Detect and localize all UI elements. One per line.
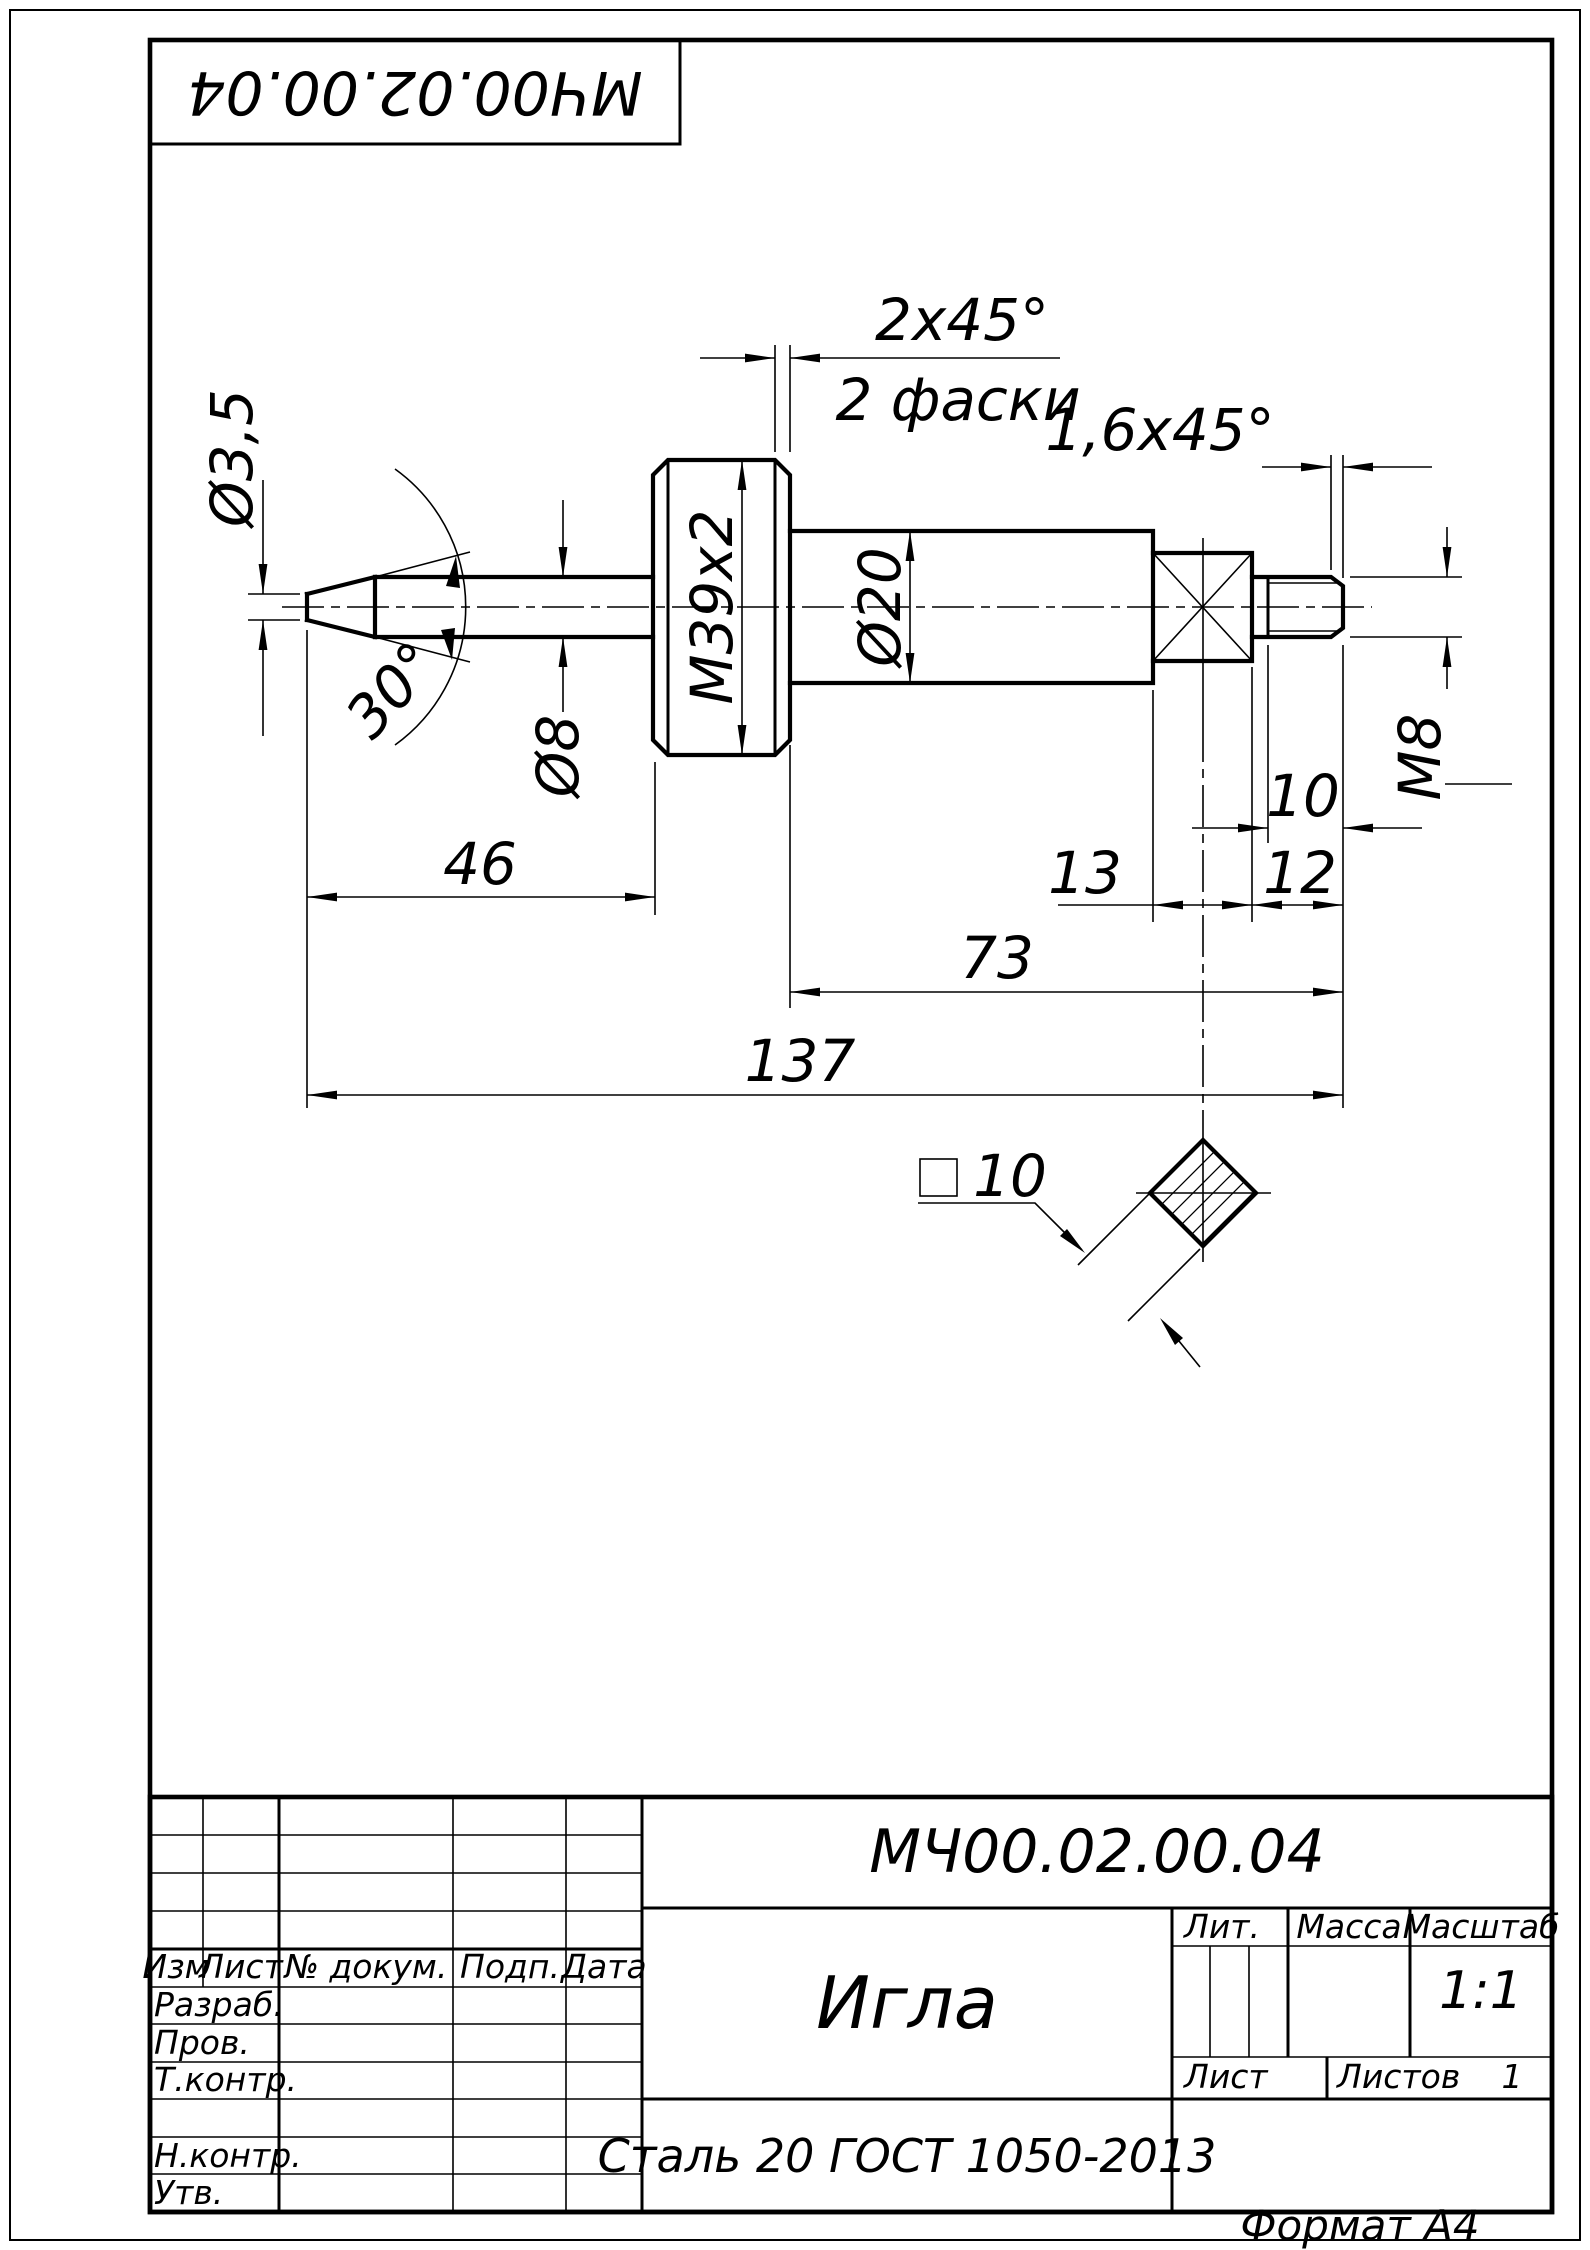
head-chamfer-extension-lines: [775, 345, 790, 452]
col-podp-data: [453, 1797, 566, 2212]
dim-head-chamfer: 2x45°: [875, 286, 1049, 354]
label-razrab: Разраб.: [154, 1985, 284, 2024]
corner-stamp-designation: МЧ00.02.00.04: [187, 57, 643, 127]
label-sheets: Листов: [1336, 2057, 1460, 2096]
dim-shaft-diameter: Ø8: [524, 715, 592, 800]
corner-stamp: МЧ00.02.00.04: [150, 40, 680, 144]
section-trace-line-1: [1078, 1190, 1153, 1265]
dim-body-diameter: Ø20: [846, 547, 914, 668]
dim-square-length: 13: [1048, 839, 1122, 907]
engineering-drawing: МЧ00.02.00.04 Ø3,5 30°: [0, 0, 1590, 2250]
label-masshtab: Масштаб: [1403, 1907, 1560, 1946]
revision-rows: [150, 1835, 642, 1911]
section-view-arrow: [1160, 1318, 1183, 1345]
dim-head-thread: M39x2: [678, 509, 746, 704]
format-label: Формат А4: [1240, 2201, 1479, 2250]
dim-tip-diameter: Ø3,5: [198, 389, 266, 529]
label-list: Лист: [198, 1947, 284, 1986]
label-n-kontr: Н.контр.: [154, 2136, 302, 2175]
dim-body-length: 73: [960, 924, 1034, 992]
section-hatching: [1130, 1086, 1280, 1376]
label-massa: Масса: [1296, 1907, 1401, 1946]
label-t-kontr: Т.контр.: [154, 2060, 297, 2099]
drawing-sheet: МЧ00.02.00.04 Ø3,5 30°: [0, 0, 1590, 2250]
label-sheet: Лист: [1183, 2057, 1269, 2096]
label-utv: Утв.: [154, 2173, 223, 2212]
dim-total-length: 137: [745, 1027, 856, 1095]
stud-thread-extension-lines: [1350, 577, 1462, 637]
dim-head-chamfer-note: 2 фаски: [835, 366, 1080, 434]
stud-chamfer-extension-lines: [1331, 455, 1343, 578]
dimensions: Ø3,5 30° Ø8 M39x2 Ø20 2x45° 2 фаски 1,6x…: [198, 286, 1512, 1108]
section-leader-arrow: [1060, 1229, 1085, 1253]
section-square-size: 10: [973, 1142, 1047, 1210]
dim-cone-angle: 30°: [332, 629, 451, 751]
section-view: 10: [918, 1086, 1280, 1376]
dim-nose-length: 46: [443, 830, 517, 898]
dim-stud-length: 12: [1263, 839, 1337, 907]
title-block: Изм Лист № докум. Подп. Дата Разраб. Про…: [142, 1797, 1559, 2212]
lit-subcells: [1210, 1946, 1249, 2057]
label-prov: Пров.: [154, 2023, 250, 2062]
label-doc-no: № докум.: [283, 1947, 448, 1986]
title-designation: МЧ00.02.00.04: [869, 1817, 1325, 1887]
scale-value: 1:1: [1439, 1961, 1523, 2021]
section-trace-line-2: [1128, 1249, 1200, 1321]
dim-stud-chamfer: 1,6x45°: [1045, 396, 1274, 464]
page-border: [10, 10, 1580, 2240]
dim-stud-thread: М8: [1386, 714, 1454, 801]
part-name: Игла: [816, 1961, 998, 2045]
square-symbol-icon: [920, 1159, 957, 1196]
dim-thread-length: 10: [1266, 762, 1340, 830]
section-leader-line: [918, 1203, 1082, 1250]
label-data: Дата: [559, 1947, 646, 1986]
sheets-value: 1: [1502, 2057, 1523, 2096]
cone-angle-arrow-top: [446, 556, 460, 588]
material-spec: Сталь 20 ГОСТ 1050-2013: [598, 2129, 1217, 2183]
label-podp: Подп.: [460, 1947, 560, 1986]
label-lit: Лит.: [1183, 1907, 1260, 1946]
